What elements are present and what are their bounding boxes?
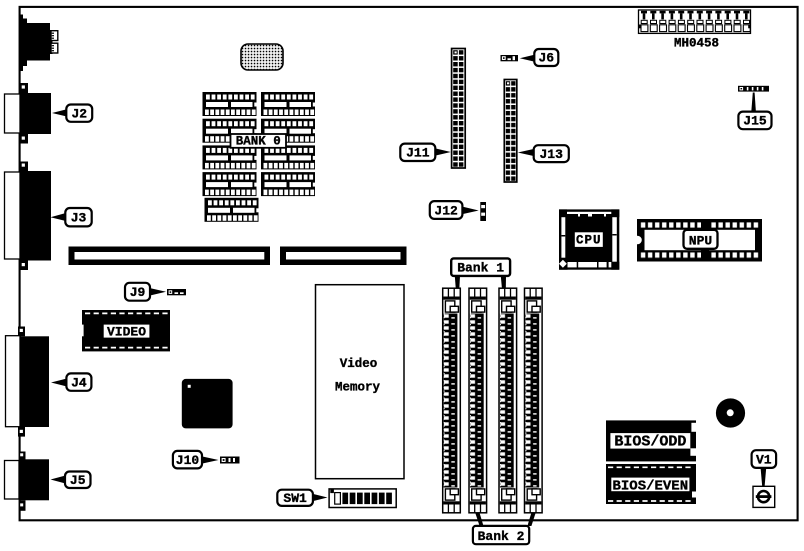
svg-text:J13: J13	[539, 147, 563, 162]
svg-text:J9: J9	[130, 285, 146, 300]
svg-text:V1: V1	[756, 452, 772, 467]
svg-text:NPU: NPU	[689, 233, 712, 248]
svg-text:J12: J12	[434, 203, 458, 218]
svg-text:J15: J15	[743, 114, 767, 129]
svg-text:J6: J6	[538, 51, 554, 66]
svg-text:J4: J4	[71, 375, 87, 390]
svg-text:Video: Video	[340, 357, 378, 371]
svg-text:J5: J5	[70, 473, 86, 488]
svg-text:J10: J10	[176, 453, 200, 468]
svg-text:Bank 2: Bank 2	[478, 529, 525, 544]
svg-text:SW1: SW1	[283, 491, 307, 506]
svg-text:J2: J2	[71, 106, 87, 121]
svg-text:Memory: Memory	[335, 381, 381, 395]
svg-text:CPU: CPU	[576, 234, 602, 248]
svg-text:J11: J11	[406, 146, 430, 161]
svg-text:BIOS/ODD: BIOS/ODD	[614, 434, 686, 451]
svg-text:MH0458: MH0458	[674, 37, 719, 51]
svg-text:Bank 1: Bank 1	[457, 261, 504, 276]
svg-text:J3: J3	[71, 211, 87, 226]
svg-text:BANK 0: BANK 0	[236, 135, 281, 149]
svg-text:VIDEO: VIDEO	[107, 325, 146, 340]
svg-text:BIOS/EVEN: BIOS/EVEN	[612, 478, 688, 494]
